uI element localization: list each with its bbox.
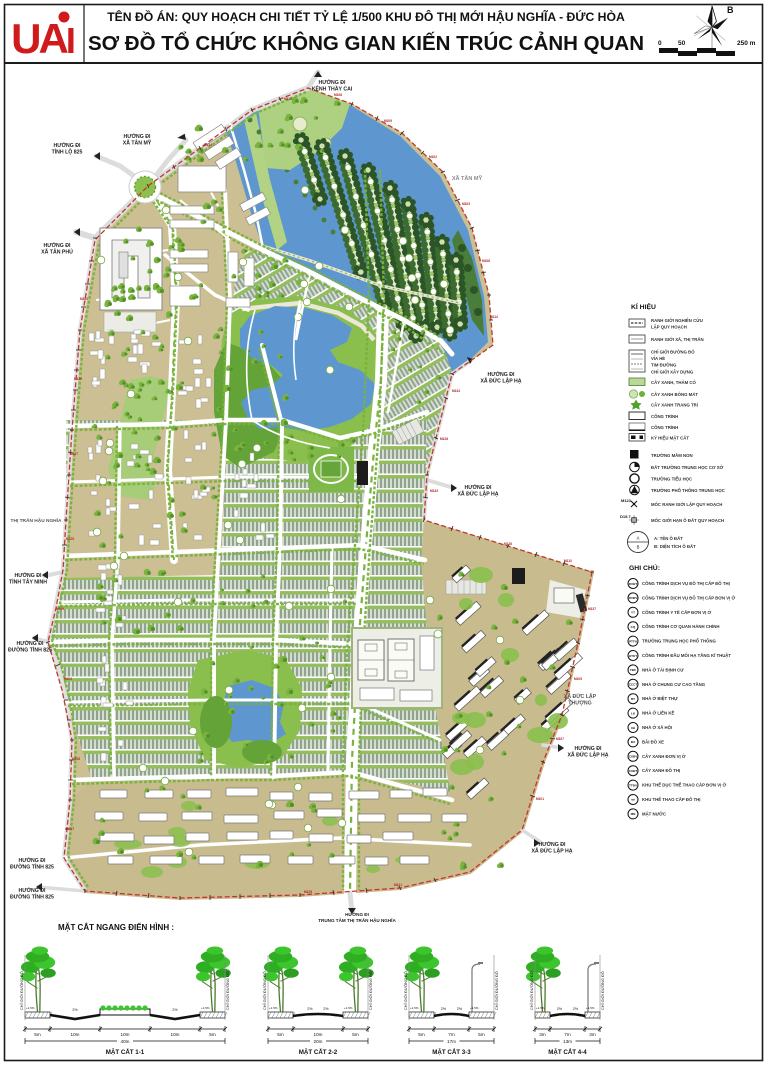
svg-text:M107: M107 [556,737,564,741]
svg-text:TRƯỜNG TRUNG HỌC PHỔ THÔNG: TRƯỜNG TRUNG HỌC PHỔ THÔNG [642,639,716,644]
svg-text:M114: M114 [284,97,292,101]
svg-text:MẶT CẮT NGANG ĐIỂN HÌNH :: MẶT CẮT NGANG ĐIỂN HÌNH : [58,923,174,932]
svg-text:M113: M113 [564,559,572,563]
svg-text:KÍ HIỆU: KÍ HIỆU [631,302,656,311]
svg-text:MỐC RANH GIỚI LẬP QUY HOẠCH: MỐC RANH GIỚI LẬP QUY HOẠCH [651,502,722,507]
svg-text:TĐC: TĐC [630,668,637,672]
svg-text:B: DIỆN TÍCH Ô ĐẤT: B: DIỆN TÍCH Ô ĐẤT [654,544,696,549]
svg-text:M137: M137 [588,607,596,611]
svg-text:CÂY XANH ĐÔ THỊ: CÂY XANH ĐÔ THỊ [642,768,680,773]
svg-text:DVĐV: DVĐV [629,596,639,600]
svg-text:M123: M123 [621,498,632,503]
svg-text:TTĐV: TTĐV [629,783,638,787]
svg-text:2%: 2% [457,1007,463,1011]
svg-text:+1.5%: +1.5% [470,1006,479,1010]
svg-text:10m: 10m [71,1032,80,1037]
svg-text:5m: 5m [34,1032,41,1037]
svg-text:B: B [727,5,734,15]
svg-text:50: 50 [678,40,686,47]
svg-text:XÃ TÂN MỸ: XÃ TÂN MỸ [452,175,483,182]
svg-text:ĐẤT TRƯỜNG TRUNG HỌC CƠ SỞ: ĐẤT TRƯỜNG TRUNG HỌC CƠ SỞ [651,465,724,470]
svg-text:CHỈ GIỚI ĐƯỜNG ĐỎ: CHỈ GIỚI ĐƯỜNG ĐỎ [403,971,408,1010]
svg-text:CHỈ GIỚI ĐƯỜNG ĐỎ: CHỈ GIỚI ĐƯỜNG ĐỎ [494,971,499,1010]
svg-text:GHI CHÚ:: GHI CHÚ: [629,563,660,572]
svg-text:NHÀ Ở TÁI ĐỊNH CƯ: NHÀ Ở TÁI ĐỊNH CƯ [642,667,684,672]
svg-text:10m: 10m [314,1032,323,1037]
svg-text:3m: 3m [589,1032,596,1037]
svg-text:NHÀ Ở XÃ HỘI: NHÀ Ở XÃ HỘI [642,725,672,730]
svg-text:CÂY XANH TRANG TRÍ: CÂY XANH TRANG TRÍ [651,403,699,408]
svg-text:CHỈ GIỚI ĐƯỜNG ĐỎ: CHỈ GIỚI ĐƯỜNG ĐỎ [262,971,267,1010]
svg-text:2%: 2% [323,1007,329,1011]
svg-text:M103: M103 [462,202,470,206]
svg-text:M125: M125 [304,890,312,894]
svg-text:THỊ TRẤN HẬU NGHĨA: THỊ TRẤN HẬU NGHĨA [11,517,62,524]
svg-text:0: 0 [658,40,662,47]
svg-text:M128: M128 [440,437,448,441]
svg-text:CÔNG TRÌNH DỊCH VỤ ĐÔ THỊ CẤP: CÔNG TRÌNH DỊCH VỤ ĐÔ THỊ CẤP ĐÔ THỊ [642,581,730,586]
svg-text:MỐC GIỚI HẠN Ô ĐẤT QUY HOẠCH: MỐC GIỚI HẠN Ô ĐẤT QUY HOẠCH [651,518,724,523]
svg-text:CXĐT: CXĐT [629,769,638,773]
svg-text:CHỈ GIỚI ĐƯỜNG ĐỎ: CHỈ GIỚI ĐƯỜNG ĐỎ [651,350,695,355]
svg-text:HTKT: HTKT [629,654,637,658]
svg-text:M109: M109 [384,119,392,123]
svg-text:CCCT: CCCT [629,683,638,687]
svg-text:M108: M108 [72,757,80,761]
svg-text:LẬP QUY HOẠCH: LẬP QUY HOẠCH [651,325,687,330]
svg-text:RANH GIỚI XÃ, THỊ TRẤN: RANH GIỚI XÃ, THỊ TRẤN [651,337,704,342]
svg-text:KHU THỂ THAO CẤP ĐÔ THỊ: KHU THỂ THAO CẤP ĐÔ THỊ [642,797,700,802]
svg-text:NHÀ Ở LIỀN KỀ: NHÀ Ở LIỀN KỀ [642,711,674,716]
svg-text:2%: 2% [72,1008,78,1012]
svg-text:CÔNG TRÌNH CƠ QUAN HÀNH CHÍNH: CÔNG TRÌNH CƠ QUAN HÀNH CHÍNH [642,624,719,629]
svg-text:HƯỚNG ĐITỈNH LỘ 825: HƯỚNG ĐITỈNH LỘ 825 [52,141,83,155]
svg-text:KHU THỂ DỤC THỂ THAO CẤP ĐƠN V: KHU THỂ DỤC THỂ THAO CẤP ĐƠN VỊ Ở [642,783,726,788]
svg-text:250 m: 250 m [737,40,756,47]
svg-text:M102: M102 [64,677,72,681]
svg-text:MN: MN [631,812,637,816]
svg-text:10m: 10m [171,1032,180,1037]
svg-text:CHỈ GIỚI ĐƯỜNG ĐỎ: CHỈ GIỚI ĐƯỜNG ĐỎ [529,971,534,1010]
svg-text:KÝ HIỆU MẶT CẮT: KÝ HIỆU MẶT CẮT [651,436,689,441]
svg-text:XH: XH [631,726,636,730]
svg-text:HƯỚNG ĐIXÃ TÂN PHÚ: HƯỚNG ĐIXÃ TÂN PHÚ [41,241,73,255]
svg-text:2%: 2% [307,1007,313,1011]
svg-text:BT: BT [631,697,635,701]
svg-text:MẶT CẮT 4-4: MẶT CẮT 4-4 [548,1048,587,1056]
svg-text:13m: 13m [563,1039,572,1044]
svg-text:A: TÊN Ô ĐẤT: A: TÊN Ô ĐẤT [654,536,683,541]
svg-text:7m: 7m [448,1032,455,1037]
svg-text:+1.5%: +1.5% [536,1006,545,1010]
svg-text:CHỈ GIỚI ĐƯỜNG ĐỎ: CHỈ GIỚI ĐƯỜNG ĐỎ [600,971,605,1010]
svg-text:TRƯỜNG MẦM NON: TRƯỜNG MẦM NON [651,453,693,458]
svg-text:5m: 5m [277,1032,284,1037]
svg-text:CHỈ GIỚI ĐƯỜNG ĐỎ: CHỈ GIỚI ĐƯỜNG ĐỎ [368,971,373,1010]
svg-text:CÔNG TRÌNH: CÔNG TRÌNH [651,425,678,430]
svg-text:5m: 5m [478,1032,485,1037]
svg-text:CXĐV: CXĐV [629,755,639,759]
svg-text:TIM ĐƯỜNG: TIM ĐƯỜNG [651,363,677,368]
svg-text:A: A [637,536,640,541]
svg-text:PTTH: PTTH [629,639,638,643]
svg-text:CÂY XANH BÓNG MÁT: CÂY XANH BÓNG MÁT [651,392,698,397]
svg-text:+1.5%: +1.5% [344,1006,353,1010]
svg-text:MẶT NƯỚC: MẶT NƯỚC [642,811,666,816]
svg-text:MẶT CẮT 3-3: MẶT CẮT 3-3 [432,1048,471,1056]
svg-text:MẶT CẮT 1-1: MẶT CẮT 1-1 [106,1048,145,1056]
svg-text:M108: M108 [334,93,342,97]
svg-text:NHÀ Ở BIỆT THỰ: NHÀ Ở BIỆT THỰ [642,696,678,701]
svg-text:SƠ ĐỒ TỔ CHỨC KHÔNG GIAN KIẾN: SƠ ĐỒ TỔ CHỨC KHÔNG GIAN KIẾN TRÚC CẢNH … [88,31,644,55]
svg-text:2%: 2% [573,1007,579,1011]
svg-text:M133: M133 [430,489,438,493]
svg-text:M130: M130 [74,377,82,381]
svg-text:CHỈ GIỚI ĐƯỜNG ĐỎ: CHỈ GIỚI ĐƯỜNG ĐỎ [225,971,230,1010]
svg-text:+1.5%: +1.5% [26,1006,35,1010]
svg-text:5m: 5m [352,1032,359,1037]
svg-text:CÔNG TRÌNH ĐẦU MỐI HẠ TẦNG KĨ: CÔNG TRÌNH ĐẦU MỐI HẠ TẦNG KĨ THUẬT [642,653,731,658]
svg-text:CÔNG TRÌNH DỊCH VỤ ĐÔ THỊ CẤP: CÔNG TRÌNH DỊCH VỤ ĐÔ THỊ CẤP ĐƠN VỊ Ở [642,595,736,600]
svg-text:17m: 17m [447,1039,456,1044]
svg-text:HƯỚNG ĐIXÃ TÂN MỸ: HƯỚNG ĐIXÃ TÂN MỸ [123,132,152,146]
svg-text:M105: M105 [574,677,582,681]
svg-text:2%: 2% [441,1007,447,1011]
svg-text:CÂY XANH, THẢM CỎ: CÂY XANH, THẢM CỎ [651,380,696,385]
svg-text:M100: M100 [80,297,88,301]
svg-text:M114: M114 [490,315,498,319]
svg-text:+1.5%: +1.5% [586,1006,595,1010]
svg-text:MẶT CẮT 2-2: MẶT CẮT 2-2 [299,1048,338,1056]
svg-text:5m: 5m [418,1032,425,1037]
svg-text:M126: M126 [504,542,512,546]
svg-text:YT: YT [631,611,635,615]
svg-text:M134: M134 [452,389,460,393]
svg-text:BÃI ĐỖ XE: BÃI ĐỖ XE [642,739,664,744]
svg-text:CÂY XANH ĐƠN VỊ Ở: CÂY XANH ĐƠN VỊ Ở [642,754,686,759]
svg-text:M109: M109 [56,607,64,611]
svg-text:M102: M102 [429,155,437,159]
svg-text:+1.5%: +1.5% [201,1006,210,1010]
svg-text:7m: 7m [564,1032,571,1037]
svg-text:+1.5%: +1.5% [269,1006,278,1010]
svg-text:TT: TT [631,798,635,802]
svg-text:D15.7: D15.7 [620,514,631,519]
svg-text:2%: 2% [557,1007,563,1011]
svg-text:TRƯỜNG PHỔ THÔNG TRUNG HỌC: TRƯỜNG PHỔ THÔNG TRUNG HỌC [651,488,725,493]
svg-text:M101: M101 [536,797,544,801]
svg-text:M107: M107 [70,452,78,456]
svg-text:2%: 2% [172,1008,178,1012]
svg-text:M107: M107 [66,827,74,831]
svg-text:DVĐT: DVĐT [629,582,638,586]
svg-text:NHÀ Ở CHUNG CƯ CAO TẦNG: NHÀ Ở CHUNG CƯ CAO TẦNG [642,682,706,687]
svg-text:TRƯỜNG TIỂU HỌC: TRƯỜNG TIỂU HỌC [651,477,692,482]
svg-text:M125: M125 [66,537,74,541]
svg-text:3m: 3m [539,1032,546,1037]
svg-text:CÔNG TRÌNH: CÔNG TRÌNH [651,414,678,419]
svg-text:RANH GIỚI NGHIÊN CỨU: RANH GIỚI NGHIÊN CỨU [651,318,703,323]
svg-text:5m: 5m [209,1032,216,1037]
svg-text:20m: 20m [314,1039,323,1044]
svg-text:CQ: CQ [631,625,636,629]
svg-text:10m: 10m [121,1032,130,1037]
svg-text:M121: M121 [394,883,402,887]
svg-text:CHỈ GIỚI ĐƯỜNG ĐỎ: CHỈ GIỚI ĐƯỜNG ĐỎ [19,971,24,1010]
svg-text:40m: 40m [121,1039,130,1044]
svg-text:TÊN ĐỒ ÁN: QUY HOẠCH CHI TIẾT: TÊN ĐỒ ÁN: QUY HOẠCH CHI TIẾT TỶ LỆ 1/50… [107,9,625,24]
svg-text:CHỈ GIỚI XÂY DỰNG: CHỈ GIỚI XÂY DỰNG [651,369,694,374]
svg-text:B: B [637,545,640,550]
svg-text:+1.5%: +1.5% [410,1006,419,1010]
svg-text:M134: M134 [204,143,212,147]
svg-text:CÔNG TRÌNH Y TẾ CẤP ĐƠN VỊ Ở: CÔNG TRÌNH Y TẾ CẤP ĐƠN VỊ Ở [642,610,712,615]
svg-text:VỈA HÈ: VỈA HÈ [651,356,665,361]
svg-text:M108: M108 [482,259,490,263]
